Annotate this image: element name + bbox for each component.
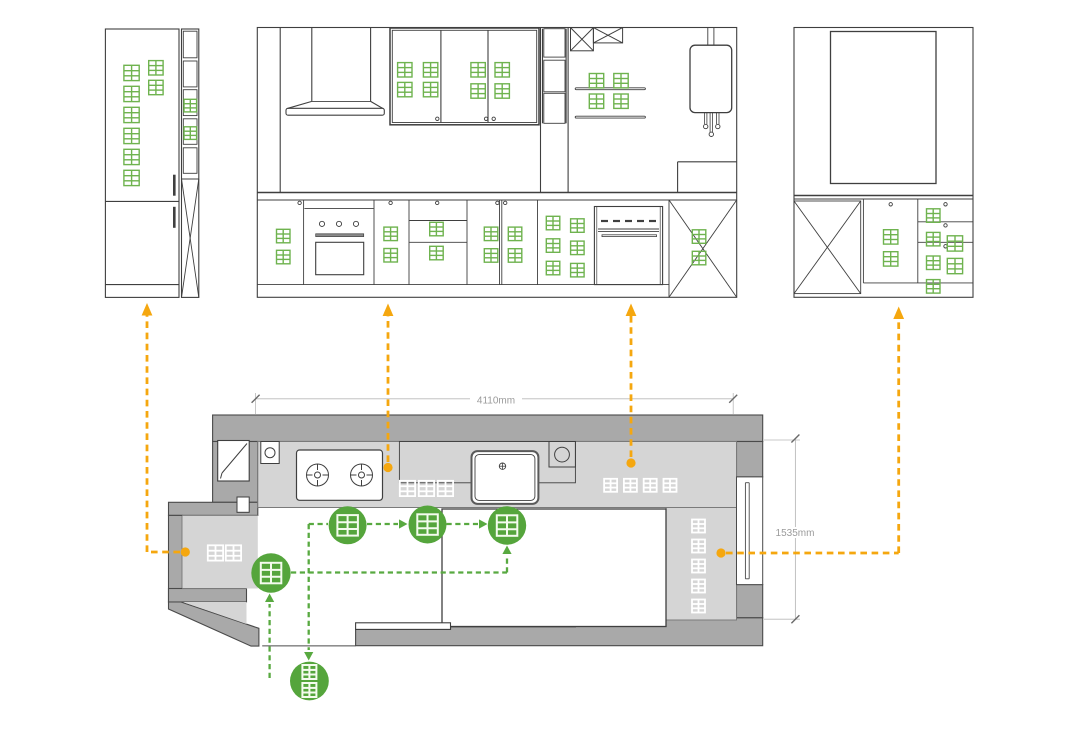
svg-text:1535mm: 1535mm	[776, 528, 815, 539]
svg-text:4110mm: 4110mm	[477, 396, 515, 407]
